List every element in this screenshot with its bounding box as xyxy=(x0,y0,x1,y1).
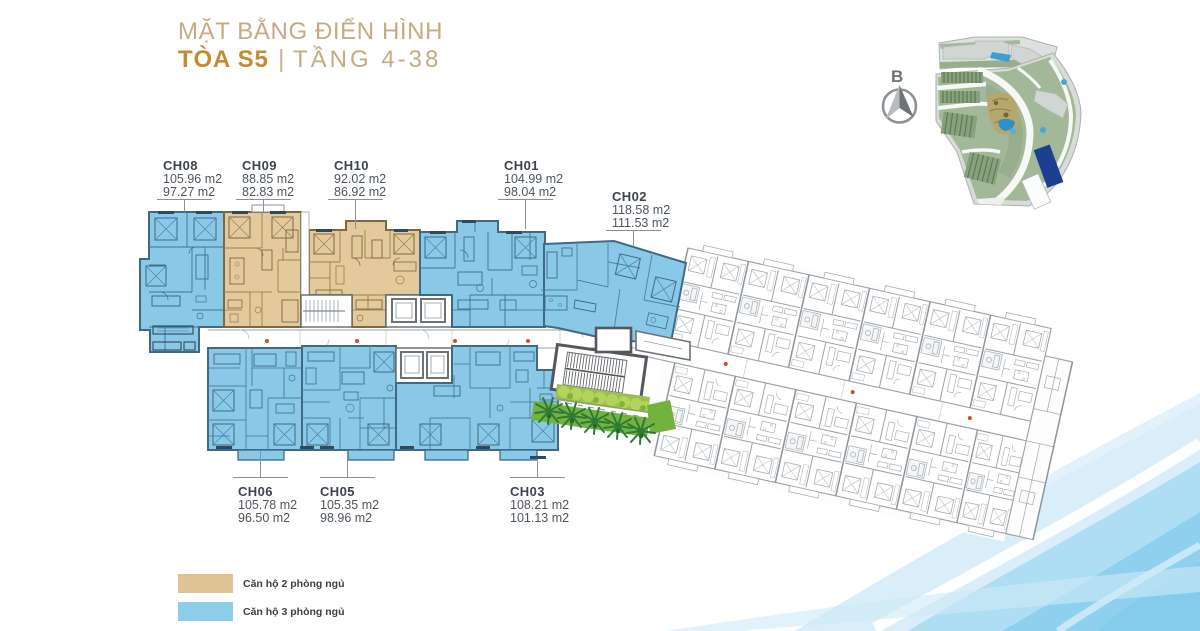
svg-text:CH06: CH06 xyxy=(238,484,273,499)
svg-text:105.35 m2: 105.35 m2 xyxy=(320,498,379,512)
svg-text:92.02 m2: 92.02 m2 xyxy=(334,172,386,186)
svg-text:Căn hộ 2 phòng ngủ: Căn hộ 2 phòng ngủ xyxy=(243,578,344,590)
svg-text:118.58 m2: 118.58 m2 xyxy=(612,203,670,217)
svg-text:108.21 m2: 108.21 m2 xyxy=(510,498,569,512)
svg-text:TẦNG 4-38: TẦNG 4-38 xyxy=(293,45,441,73)
svg-text:|: | xyxy=(278,45,285,73)
svg-text:88.85 m2: 88.85 m2 xyxy=(242,172,294,186)
svg-text:105.78 m2: 105.78 m2 xyxy=(238,498,297,512)
svg-text:111.53 m2: 111.53 m2 xyxy=(612,216,669,230)
svg-text:MẶT BẰNG ĐIỂN HÌNH: MẶT BẰNG ĐIỂN HÌNH xyxy=(178,17,443,45)
svg-text:CH09: CH09 xyxy=(242,158,277,173)
svg-text:CH02: CH02 xyxy=(612,189,647,204)
svg-text:Căn hộ 3 phòng ngủ: Căn hộ 3 phòng ngủ xyxy=(243,606,344,618)
svg-text:B: B xyxy=(891,67,903,86)
svg-text:CH08: CH08 xyxy=(163,158,198,173)
svg-text:82.83 m2: 82.83 m2 xyxy=(242,185,294,199)
svg-text:101.13 m2: 101.13 m2 xyxy=(510,511,569,525)
svg-text:CH03: CH03 xyxy=(510,484,545,499)
svg-text:CH10: CH10 xyxy=(334,158,369,173)
svg-text:98.96 m2: 98.96 m2 xyxy=(320,511,372,525)
svg-text:96.50 m2: 96.50 m2 xyxy=(238,511,290,525)
svg-text:86.92 m2: 86.92 m2 xyxy=(334,185,386,199)
svg-text:98.04 m2: 98.04 m2 xyxy=(504,185,556,199)
svg-text:TÒA S5: TÒA S5 xyxy=(178,45,269,73)
svg-text:97.27 m2: 97.27 m2 xyxy=(163,185,215,199)
svg-text:104.99 m2: 104.99 m2 xyxy=(504,172,563,186)
svg-text:105.96 m2: 105.96 m2 xyxy=(163,172,222,186)
svg-text:CH05: CH05 xyxy=(320,484,355,499)
svg-text:CH01: CH01 xyxy=(504,158,539,173)
